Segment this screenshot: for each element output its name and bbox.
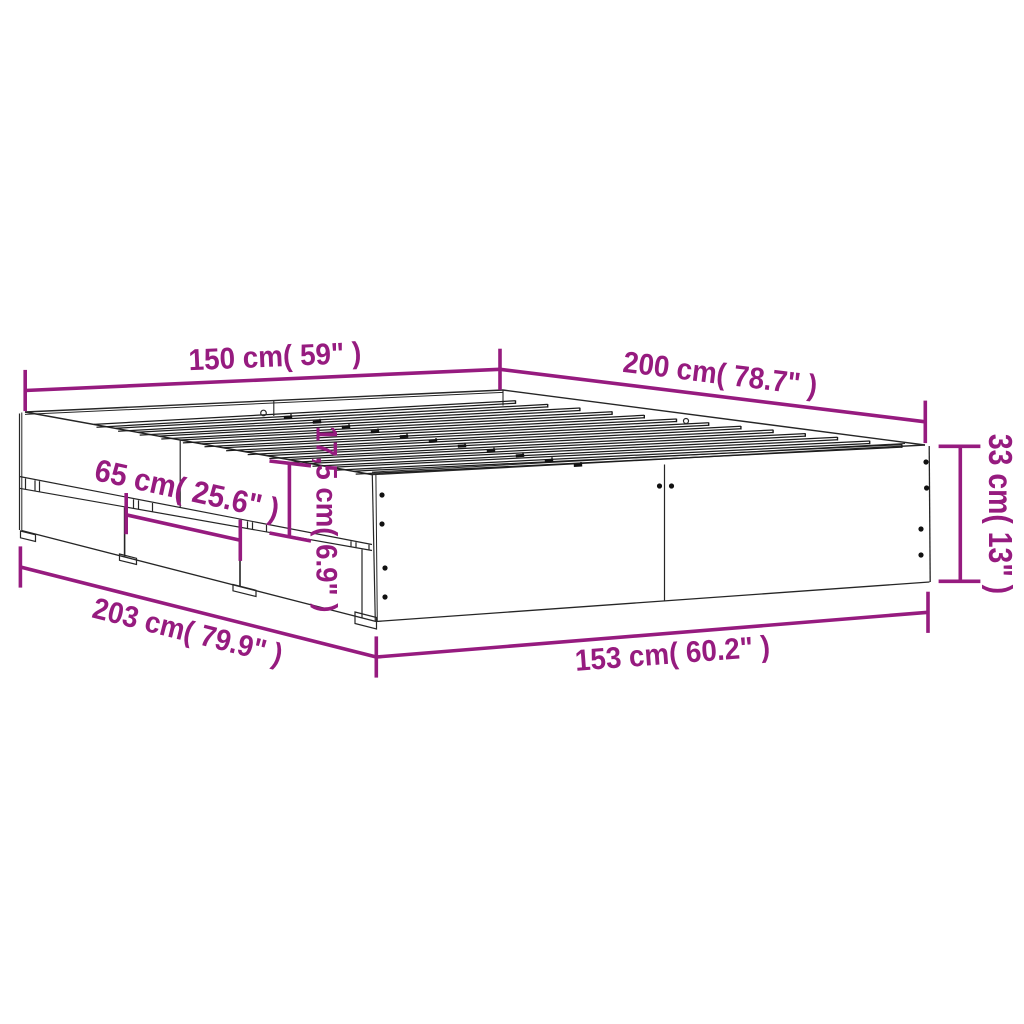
svg-text:17,5 cm( 6.9" ): 17,5 cm( 6.9" ) — [309, 426, 342, 612]
svg-text:33 cm( 13" ): 33 cm( 13" ) — [982, 434, 1019, 594]
